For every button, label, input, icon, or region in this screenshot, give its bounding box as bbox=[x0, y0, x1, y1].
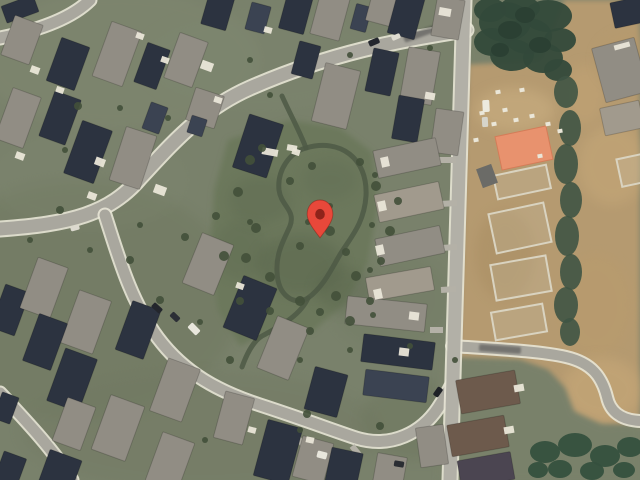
bush bbox=[251, 223, 261, 233]
pin-dot bbox=[315, 209, 325, 220]
bush bbox=[345, 316, 355, 326]
construction-material bbox=[495, 90, 501, 95]
bush bbox=[331, 291, 341, 301]
bush bbox=[258, 144, 266, 152]
bush bbox=[347, 52, 353, 58]
bush bbox=[351, 271, 361, 281]
tree-strip bbox=[554, 287, 578, 323]
bush bbox=[371, 181, 381, 191]
bush bbox=[236, 297, 244, 305]
construction-material bbox=[545, 122, 551, 127]
bush bbox=[366, 297, 374, 305]
bush bbox=[212, 212, 220, 220]
tree-strip bbox=[554, 144, 578, 184]
bush bbox=[241, 253, 251, 263]
bush bbox=[245, 155, 255, 165]
tree-strip bbox=[555, 216, 579, 256]
construction-material bbox=[513, 118, 519, 123]
bush bbox=[308, 162, 316, 170]
bush bbox=[342, 248, 350, 256]
bush bbox=[233, 187, 243, 197]
bush bbox=[137, 222, 143, 228]
bush bbox=[407, 343, 413, 349]
bush bbox=[27, 237, 33, 243]
satellite-imagery bbox=[0, 0, 640, 480]
bush bbox=[247, 219, 253, 225]
bush bbox=[219, 251, 229, 261]
tree-strip bbox=[559, 110, 581, 146]
bush bbox=[316, 308, 324, 316]
bush bbox=[297, 427, 303, 433]
bush bbox=[62, 147, 68, 153]
bush bbox=[385, 226, 395, 236]
construction-material bbox=[502, 108, 508, 113]
construction-material bbox=[491, 122, 497, 127]
house-roof bbox=[610, 0, 640, 28]
tree-strip bbox=[560, 318, 580, 346]
construction-material bbox=[529, 114, 535, 119]
house-roof bbox=[415, 424, 448, 468]
tree bbox=[528, 462, 548, 478]
tree bbox=[580, 462, 604, 480]
house-detail bbox=[399, 347, 410, 356]
bush bbox=[296, 242, 304, 250]
bush bbox=[286, 177, 294, 185]
satellite-map-canvas[interactable] bbox=[0, 0, 640, 480]
bush bbox=[265, 272, 275, 282]
bush bbox=[202, 437, 208, 443]
vehicle bbox=[482, 100, 490, 112]
bush bbox=[372, 172, 378, 178]
construction-material bbox=[473, 138, 479, 143]
bush bbox=[197, 319, 203, 325]
tree bbox=[558, 433, 592, 457]
bush bbox=[295, 296, 305, 306]
bush bbox=[56, 206, 64, 214]
bush bbox=[347, 347, 353, 353]
bush bbox=[367, 267, 373, 273]
bush bbox=[427, 45, 433, 51]
bush bbox=[266, 307, 274, 315]
bush bbox=[226, 356, 234, 364]
tree bbox=[613, 462, 635, 478]
bush bbox=[394, 197, 402, 205]
tree bbox=[530, 441, 560, 463]
tree-strip bbox=[560, 182, 582, 218]
bush bbox=[165, 115, 171, 121]
bush bbox=[306, 327, 314, 335]
tree-strip bbox=[560, 254, 582, 290]
bush bbox=[87, 247, 93, 253]
bush bbox=[377, 257, 385, 265]
bush bbox=[356, 158, 364, 166]
bush bbox=[117, 105, 123, 111]
construction-material bbox=[537, 154, 543, 159]
bush bbox=[370, 312, 376, 318]
vehicle bbox=[482, 117, 489, 127]
bush bbox=[369, 222, 375, 228]
tree-strip bbox=[554, 76, 578, 108]
construction-material bbox=[557, 129, 563, 134]
bush bbox=[156, 296, 164, 304]
bush bbox=[126, 256, 134, 264]
bush bbox=[74, 102, 82, 110]
bush bbox=[452, 357, 458, 363]
bush bbox=[267, 92, 273, 98]
bush bbox=[297, 357, 303, 363]
bush bbox=[181, 233, 189, 241]
house-detail bbox=[409, 311, 420, 320]
tree bbox=[548, 460, 572, 478]
bush bbox=[303, 410, 311, 418]
bush bbox=[247, 57, 253, 63]
bush bbox=[376, 422, 384, 430]
construction-material bbox=[519, 88, 525, 93]
driveway bbox=[441, 289, 456, 290]
